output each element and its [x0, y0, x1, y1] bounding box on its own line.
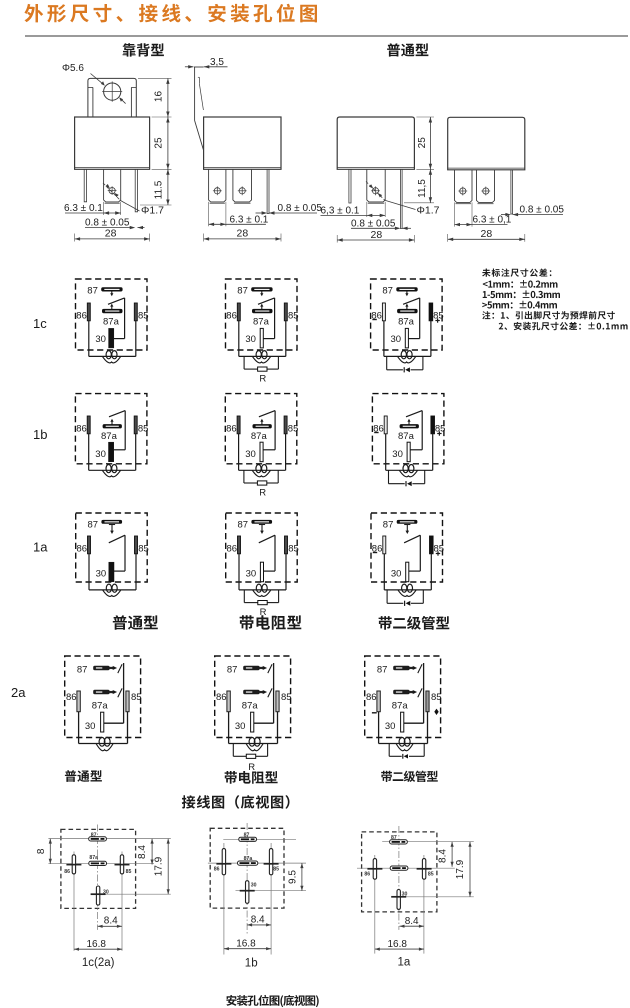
svg-text:1a: 1a	[398, 957, 411, 969]
svg-text:86: 86	[214, 867, 220, 873]
svg-text:85: 85	[131, 692, 142, 703]
svg-text:0.8 ± 0.05: 0.8 ± 0.05	[278, 203, 323, 214]
svg-text:87a: 87a	[92, 700, 109, 711]
svg-text:11.5: 11.5	[153, 180, 164, 199]
svg-text:30: 30	[85, 721, 96, 732]
svg-text:3,5: 3,5	[210, 57, 224, 68]
svg-text:16.8: 16.8	[236, 938, 256, 949]
svg-text:16: 16	[153, 91, 164, 103]
svg-text:8.4: 8.4	[405, 916, 419, 927]
svg-text:85: 85	[138, 543, 149, 554]
svg-text:Φ1.7: Φ1.7	[417, 204, 440, 216]
svg-text:86: 86	[366, 692, 377, 703]
svg-text:8.4: 8.4	[104, 915, 118, 926]
svg-text:87a: 87a	[251, 431, 268, 442]
svg-text:1b: 1b	[33, 427, 47, 442]
svg-text:87a: 87a	[253, 317, 270, 328]
svg-text:87a: 87a	[103, 317, 120, 328]
svg-text:85: 85	[288, 543, 299, 554]
svg-text:85: 85	[138, 423, 149, 434]
svg-text:85: 85	[431, 692, 442, 703]
svg-text:6.3 ± 0.1: 6.3 ± 0.1	[230, 214, 269, 225]
svg-text:30: 30	[385, 721, 396, 732]
svg-text:Φ5.6: Φ5.6	[62, 63, 84, 74]
svg-text:0.8 ± 0.05: 0.8 ± 0.05	[520, 205, 565, 216]
svg-text:30: 30	[391, 569, 402, 580]
svg-text:87a: 87a	[398, 317, 415, 328]
svg-text:30: 30	[245, 449, 256, 460]
svg-text:30: 30	[95, 334, 106, 345]
svg-text:25: 25	[417, 137, 428, 149]
svg-text:0.8 ± 0.05: 0.8 ± 0.05	[351, 218, 396, 229]
svg-text:87a: 87a	[392, 700, 409, 711]
svg-text:6.3 ± 0,1: 6.3 ± 0,1	[473, 215, 512, 226]
svg-text:86: 86	[64, 869, 70, 875]
svg-text:1c(2a): 1c(2a)	[82, 957, 115, 969]
svg-text:30: 30	[251, 882, 257, 888]
svg-text:87: 87	[227, 665, 238, 676]
svg-text:1b: 1b	[245, 957, 258, 969]
svg-text:30: 30	[392, 449, 403, 460]
svg-text:16.8: 16.8	[388, 939, 408, 950]
svg-text:87: 87	[91, 832, 97, 838]
svg-text:16.8: 16.8	[87, 939, 107, 950]
svg-text:87: 87	[244, 833, 250, 839]
svg-text:28: 28	[105, 228, 117, 240]
svg-text:8.4: 8.4	[437, 849, 448, 863]
svg-text:6.3 ± 0.1: 6.3 ± 0.1	[64, 203, 103, 214]
svg-text:86: 86	[226, 423, 237, 434]
svg-text:85: 85	[126, 869, 132, 875]
svg-text:86: 86	[216, 692, 227, 703]
svg-text:87a: 87a	[89, 855, 98, 861]
svg-text:87a: 87a	[101, 431, 118, 442]
svg-text:17.9: 17.9	[154, 856, 165, 876]
svg-text:85: 85	[288, 310, 299, 321]
svg-text:87: 87	[391, 835, 397, 841]
svg-text:87: 87	[377, 665, 388, 676]
svg-text:87: 87	[87, 285, 98, 296]
svg-text:85: 85	[281, 692, 292, 703]
svg-text:30: 30	[245, 334, 256, 345]
svg-text:85: 85	[433, 310, 444, 321]
svg-text:87: 87	[383, 519, 394, 530]
svg-text:30: 30	[96, 569, 107, 580]
svg-text:87a: 87a	[242, 700, 259, 711]
svg-text:87a: 87a	[244, 856, 253, 862]
svg-text:86: 86	[364, 871, 370, 877]
svg-text:85: 85	[138, 310, 149, 321]
svg-text:85: 85	[435, 423, 446, 434]
svg-text:R: R	[248, 762, 255, 773]
svg-text:17.9: 17.9	[455, 859, 466, 879]
svg-text:2a: 2a	[11, 685, 26, 700]
svg-text:R: R	[259, 488, 266, 499]
svg-text:Φ1.7: Φ1.7	[141, 205, 164, 217]
svg-text:R: R	[259, 374, 266, 385]
svg-text:86: 86	[226, 310, 237, 321]
svg-text:87: 87	[88, 519, 99, 530]
svg-text:1a: 1a	[33, 540, 48, 555]
svg-text:25: 25	[153, 137, 164, 149]
svg-text:30: 30	[235, 721, 246, 732]
svg-text:9.5: 9.5	[288, 870, 299, 884]
svg-text:87: 87	[382, 285, 393, 296]
svg-text:86: 86	[66, 692, 77, 703]
svg-text:87: 87	[77, 665, 88, 676]
svg-text:30: 30	[391, 334, 402, 345]
svg-text:85: 85	[434, 543, 445, 554]
svg-text:28: 28	[371, 229, 383, 241]
svg-text:11,5: 11,5	[417, 179, 428, 198]
svg-text:30: 30	[246, 569, 257, 580]
svg-text:86: 86	[76, 310, 87, 321]
svg-text:86: 86	[227, 543, 238, 554]
svg-text:87: 87	[237, 285, 248, 296]
svg-text:86: 86	[77, 543, 88, 554]
svg-text:85: 85	[273, 867, 279, 873]
svg-text:87a: 87a	[398, 431, 415, 442]
svg-text:6,3 ± 0.1: 6,3 ± 0.1	[321, 205, 360, 216]
svg-text:85: 85	[288, 423, 299, 434]
svg-text:8.4: 8.4	[251, 914, 265, 925]
svg-text:87: 87	[238, 519, 249, 530]
svg-text:28: 28	[481, 228, 493, 240]
svg-text:8.4: 8.4	[137, 845, 148, 859]
svg-text:86: 86	[76, 423, 87, 434]
svg-text:8: 8	[36, 848, 47, 854]
svg-text:30: 30	[95, 449, 106, 460]
svg-text:85: 85	[428, 871, 434, 877]
svg-text:1c: 1c	[33, 316, 47, 331]
svg-text:28: 28	[237, 228, 249, 240]
